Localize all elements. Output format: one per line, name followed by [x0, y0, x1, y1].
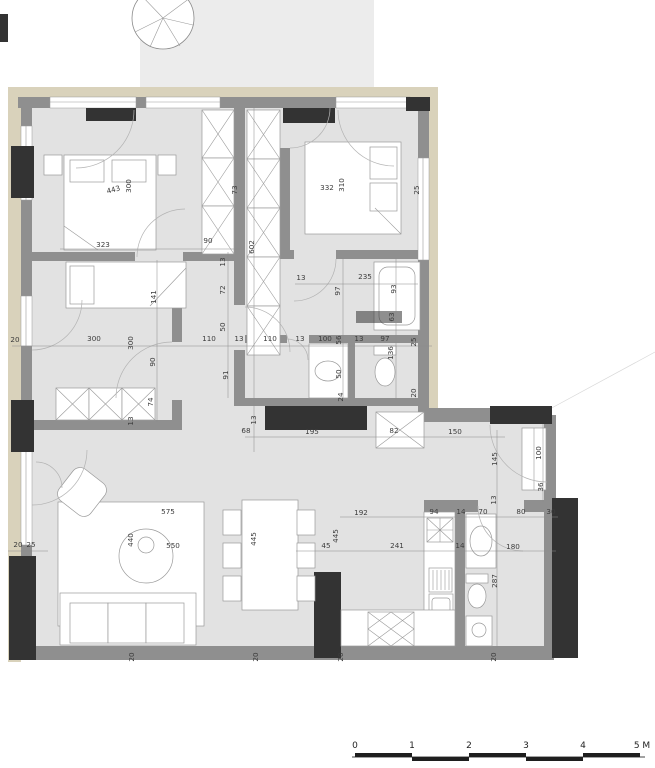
- dimension-label: 180: [506, 542, 520, 551]
- dimension-label: 25: [412, 185, 421, 194]
- scale-tick-label: 4: [580, 741, 586, 751]
- dining-set: [223, 500, 315, 610]
- dimension-label: 550: [166, 541, 180, 550]
- radiator: [86, 108, 136, 121]
- dimension-label: 195: [305, 427, 319, 436]
- dimension-label: 25: [26, 540, 35, 549]
- dimension-label: 97: [333, 286, 342, 295]
- dimension-label: 93: [389, 284, 398, 293]
- dimension-label: 50: [334, 369, 343, 379]
- boiler: [427, 518, 453, 542]
- dimension-label: 13: [295, 334, 304, 343]
- dimension-label: 300: [126, 336, 135, 350]
- chair: [297, 576, 315, 601]
- dimension-label: 20: [336, 652, 345, 662]
- dimension-label: 45: [321, 541, 330, 550]
- dimension-label: 13: [126, 416, 135, 425]
- dimension-label: 445: [249, 532, 258, 546]
- wall-pier: [11, 400, 34, 452]
- floor-plan-page: 4433003239073136027250332310251323597936…: [0, 0, 655, 768]
- dimension-label: 287: [490, 574, 499, 588]
- dimension-label: 150: [448, 427, 462, 436]
- dimension-label: 110: [202, 334, 216, 343]
- chair: [223, 543, 241, 568]
- dimension-label: 575: [161, 507, 175, 516]
- dimension-label: 110: [263, 334, 277, 343]
- dimension-label: 100: [534, 446, 543, 460]
- scale-bar: 012345 M: [352, 741, 650, 761]
- dimension-label: 13: [354, 334, 363, 343]
- radiator: [283, 108, 335, 123]
- dimension-label: 100: [318, 334, 332, 343]
- dimension-label: 25: [409, 337, 418, 346]
- dimension-label: 241: [390, 541, 404, 550]
- dimension-label: 73: [230, 185, 239, 194]
- dining-table: [242, 500, 298, 610]
- dimension-label: 136: [386, 346, 395, 360]
- dimension-label: 68: [241, 426, 251, 435]
- kitchen-cabinet: [368, 612, 414, 646]
- dimension-label: 192: [354, 508, 368, 517]
- dimension-label: 72: [218, 285, 227, 294]
- scale-tick-label: 1: [409, 741, 415, 751]
- chair: [223, 510, 241, 535]
- column: [314, 572, 341, 658]
- dimension-label: 82: [389, 426, 398, 435]
- dimension-label: 80: [516, 507, 526, 516]
- dimension-label: 24: [336, 392, 345, 402]
- dimension-label: 145: [490, 452, 499, 466]
- dimension-label: 63: [387, 312, 396, 321]
- dimension-label: 70: [478, 507, 488, 516]
- wall-pier: [11, 146, 34, 198]
- dimension-label: 13: [249, 415, 258, 424]
- dimension-label: 14: [455, 541, 465, 550]
- dimension-label: 36: [536, 482, 545, 492]
- dimension-label: 13: [218, 257, 227, 266]
- dimension-label: 74: [146, 397, 155, 407]
- dimension-label: 20: [127, 652, 136, 662]
- entry-lintel: [490, 406, 552, 424]
- dimension-label: 30: [546, 507, 556, 516]
- dimension-label: 323: [96, 240, 110, 249]
- chair: [223, 576, 241, 601]
- dimension-label: 20: [409, 388, 418, 398]
- dimension-label: 50: [218, 322, 227, 332]
- dimension-label: 20: [251, 652, 260, 662]
- dimension-label: 141: [149, 290, 158, 304]
- dimension-label: 56: [334, 335, 343, 345]
- dimension-label: 20: [489, 652, 498, 662]
- dimension-label: 97: [380, 334, 389, 343]
- chair: [297, 543, 315, 568]
- scale-tick-label: 0: [352, 741, 358, 751]
- scale-tick-label: 5 M: [634, 741, 650, 751]
- dimension-label: 14: [456, 507, 466, 516]
- chair: [297, 510, 315, 535]
- dimension-label: 13: [234, 334, 243, 343]
- party-wall: [552, 498, 578, 658]
- dimension-label: 440: [126, 533, 135, 547]
- scale-tick-label: 2: [466, 741, 472, 751]
- dimension-label: 90: [148, 357, 157, 367]
- dimension-label: 235: [358, 272, 372, 281]
- wc2-toilet: [466, 574, 488, 608]
- dimension-label: 20: [10, 335, 20, 344]
- scale-labels: 012345 M: [352, 741, 650, 751]
- dimension-label: 300: [87, 334, 101, 343]
- sofa: [60, 593, 196, 645]
- scale-tick-label: 3: [523, 741, 529, 751]
- dimension-label: 445: [331, 529, 340, 543]
- single-bed-3: [66, 262, 186, 308]
- dimension-label: 13: [489, 495, 498, 504]
- dimension-label: 332: [320, 183, 334, 192]
- wc2-basin: [466, 616, 492, 646]
- dish-rack: [429, 568, 452, 592]
- dimension-label: 91: [221, 370, 230, 379]
- dimension-label: 13: [296, 273, 305, 282]
- double-bed-1: [44, 155, 176, 250]
- dimension-label: 20: [13, 540, 23, 549]
- wall-pier: [9, 556, 36, 660]
- dimension-label: 300: [124, 179, 133, 193]
- floor-plan-drawing: 4433003239073136027250332310251323597936…: [0, 0, 655, 768]
- dimension-label: 310: [337, 178, 346, 192]
- dimension-label: 94: [429, 507, 439, 516]
- shaft: [376, 412, 424, 448]
- dimension-label: 602: [247, 240, 256, 254]
- dimension-label: 90: [203, 236, 213, 245]
